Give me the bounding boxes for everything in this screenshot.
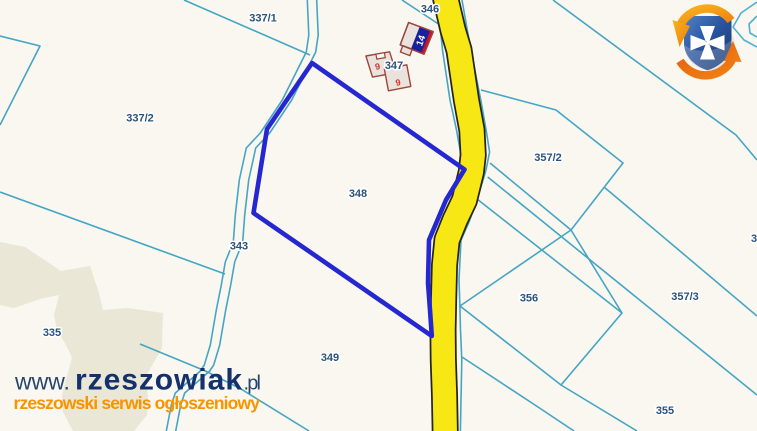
svg-text:343: 343 (230, 241, 248, 253)
svg-text:335: 335 (43, 327, 61, 339)
svg-text:346: 346 (421, 4, 439, 16)
svg-text:355: 355 (656, 405, 674, 417)
svg-text:3: 3 (751, 233, 757, 245)
svg-text:357/3: 357/3 (671, 291, 699, 303)
svg-text:347: 347 (385, 60, 403, 72)
svg-text:337/1: 337/1 (249, 13, 277, 25)
svg-text:356: 356 (520, 293, 538, 305)
svg-text:348: 348 (349, 188, 367, 200)
svg-text:357/2: 357/2 (534, 152, 562, 164)
svg-text:rzeszowski serwis ogłoszeniowy: rzeszowski serwis ogłoszeniowy (14, 393, 261, 413)
svg-text:349: 349 (321, 352, 339, 364)
svg-text:rzeszowiak: rzeszowiak (75, 364, 242, 397)
svg-text:.pl: .pl (244, 373, 262, 395)
svg-text:337/2: 337/2 (126, 113, 154, 125)
svg-text:www.: www. (14, 369, 70, 395)
